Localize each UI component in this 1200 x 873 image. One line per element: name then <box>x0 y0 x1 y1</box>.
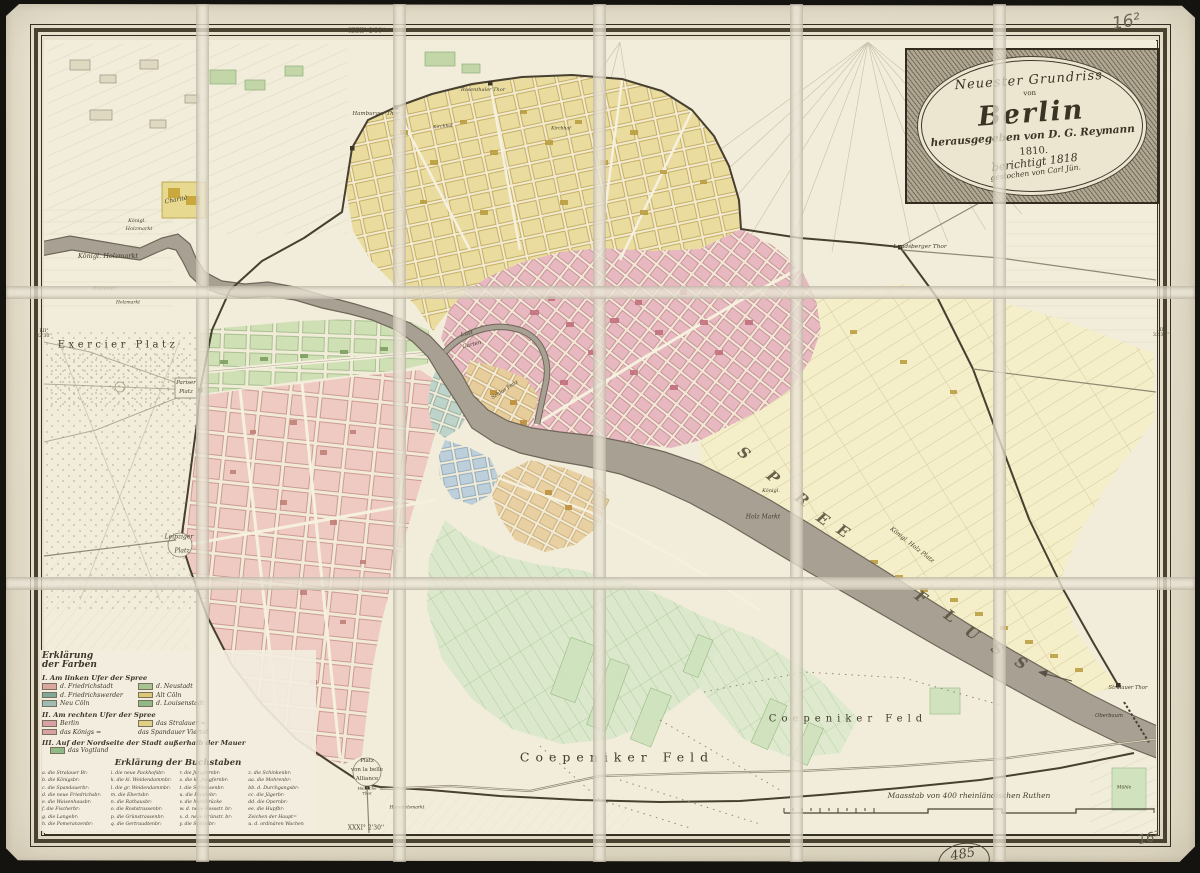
legend-entry: d. Friedrichswerder <box>42 692 134 699</box>
graticule-bottom: XXXI° 2'30'' <box>348 825 385 832</box>
legend-letter-entry: b. die Königsbr: <box>42 777 108 784</box>
legend-swatch <box>138 683 153 690</box>
legend: Erklärung der Farben I. Am linken Ufer d… <box>40 650 316 831</box>
legend-entry: das Spandauer Viertel <box>138 729 314 736</box>
legend-letter-entry: c. die Spandauerbr: <box>42 785 108 792</box>
legend-letter-entry: q. die Gertraudtenbr: <box>111 821 177 828</box>
legend-letter-entry: cc. die Jägerbr: <box>248 792 314 799</box>
legend-letter-columns: a. die Stralauer Br:b. die Königsbr:c. d… <box>42 770 314 828</box>
legend-letters-heading: Erklärung der Buchstaben <box>42 758 314 768</box>
legend-entry: das Königs = <box>42 729 134 736</box>
legend-swatch <box>138 692 153 699</box>
legend-letter-entry: a. die Stralauer Br: <box>42 770 108 777</box>
legend-letter-entry: n. die Rathausbr: <box>111 799 177 806</box>
legend-letter-entry: p. die Grünstrassenbr: <box>111 814 177 821</box>
legend-letter-entry: h. die Pomeranzenbr: <box>42 821 108 828</box>
legend-swatch <box>42 683 57 690</box>
scale-bar-rule <box>778 800 1160 816</box>
graticule-left: LII° 32'30'' <box>35 329 53 339</box>
legend-letter-entry: r. die Jungfernbr: <box>180 770 246 777</box>
scale-bar: Maasstab von 400 rheinländischen Ruthen <box>778 792 1160 820</box>
legend-entry: Alt Cöln <box>138 692 314 699</box>
legend-letter-entry: x. d. neue Grünstr. br: <box>180 814 246 821</box>
legend-letter-entry: d. die neue Friedrichsbr: <box>42 792 108 799</box>
graticule-right: LII° 32'30'' <box>1152 328 1170 338</box>
legend-entry: Berlin <box>42 720 134 727</box>
legend-section-title: III. Auf der Nordseite der Stadt außerha… <box>42 739 314 754</box>
legend-letter-entry: f. die Fischerbr: <box>42 806 108 813</box>
legend-swatch <box>42 700 57 707</box>
collection-stamp: 485 <box>936 843 996 862</box>
legend-letter-entry: i. die neue Packhofsbr: <box>111 770 177 777</box>
legend-letter-entry: v. die Mehlbrücke <box>180 799 246 806</box>
legend-letter-entry: u. d. ordinären Wachen <box>248 821 314 828</box>
legend-letter-entry: aa. die Mohrenbr: <box>248 777 314 784</box>
legend-letter-entry: g. die Langebr: <box>42 814 108 821</box>
legend-swatch <box>138 700 153 707</box>
map-photo: Neuester Grundriss von Berlin herausgege… <box>0 0 1200 873</box>
legend-swatch <box>42 729 57 736</box>
legend-swatch <box>138 720 153 727</box>
legend-swatch <box>42 720 57 727</box>
legend-colors-heading-2: der Farben <box>42 661 314 670</box>
graticule-top: XXXI° 2'30'' <box>349 28 386 35</box>
legend-entry: das Vogtland <box>50 747 314 754</box>
legend-letter-entry: e. die Waisenhausbr: <box>42 799 108 806</box>
legend-entry: d. Louisenstadt <box>138 700 314 707</box>
legend-letter-entry: l. die gr. Weidendammbr: <box>111 785 177 792</box>
legend-letter-entry: w. d. neue Rossstr. br: <box>180 806 246 813</box>
legend-entry: Neu Cöln <box>42 700 134 707</box>
legend-letter-entry: u. die Hundebr: <box>180 792 246 799</box>
legend-section-title: II. Am rechten Ufer der Spree <box>42 711 314 719</box>
scale-bar-label: Maasstab von 400 rheinländischen Ruthen <box>778 792 1160 800</box>
legend-letter-entry: dd. die Opernbr: <box>248 799 314 806</box>
legend-entry: d. Friedrichstadt <box>42 683 134 690</box>
legend-letter-entry: k. die kl. Weidendammbr: <box>111 777 177 784</box>
legend-entry: das Stralauer = <box>138 720 314 727</box>
legend-letter-entry: y. die Spittelbr: <box>180 821 246 828</box>
legend-section-title: I. Am linken Ufer der Spree <box>42 674 314 682</box>
title-cartouche: Neuester Grundriss von Berlin herausgege… <box>905 48 1159 204</box>
legend-swatch <box>50 747 65 754</box>
legend-letter-entry: s. die kl. Jungfernbr: <box>180 777 246 784</box>
legend-letter-entry: bb. d. Durchgangsbr: <box>248 785 314 792</box>
legend-color-sections: I. Am linken Ufer der Spreed. Friedrichs… <box>42 674 314 755</box>
legend-letter-entry: t. die Schleusenbr: <box>180 785 246 792</box>
stamp-number: 485 <box>949 845 976 862</box>
legend-letter-entry: ee. die Hupfbr: <box>248 806 314 813</box>
legend-entry: d. Neustadt <box>138 683 314 690</box>
legend-letter-entry: z. die Schinkenbr: <box>248 770 314 777</box>
legend-letter-entry: o. die Roststrassenbr: <box>111 806 177 813</box>
legend-swatch <box>42 692 57 699</box>
legend-letter-entry: Zeichen der Haupt= <box>248 814 314 821</box>
legend-letter-entry: m. die Ebertsbr: <box>111 792 177 799</box>
